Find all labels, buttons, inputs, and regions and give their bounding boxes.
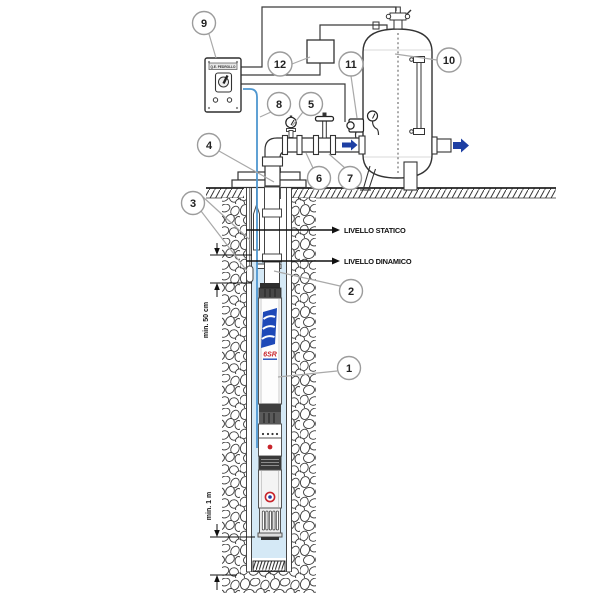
callout-2-level-sensor: 2 <box>340 280 363 303</box>
callout-10-pressure-tank: 10 <box>437 48 461 72</box>
static-level-label: LIVELLO STATICO <box>344 226 406 235</box>
callout-5-pressure-gauge: 5 <box>300 93 323 116</box>
dynamic-level-label: LIVELLO DINAMICO <box>344 257 412 266</box>
svg-text:10: 10 <box>443 55 455 67</box>
panel-indicator-light <box>227 98 231 102</box>
svg-text:6: 6 <box>316 173 322 185</box>
svg-text:8: 8 <box>276 99 282 111</box>
panel-switch <box>216 73 232 92</box>
callout-1-pump: 1 <box>338 357 361 380</box>
svg-text:12: 12 <box>274 59 286 71</box>
junction-box <box>307 40 334 63</box>
svg-text:4: 4 <box>206 140 213 152</box>
pump-brand-logo <box>261 308 277 348</box>
well-bottom-gravel <box>253 561 285 571</box>
suction-strainer <box>258 508 282 540</box>
pressure-switch <box>347 119 364 138</box>
valve-handwheel-icon <box>316 117 334 122</box>
arrow-right-icon <box>332 227 340 234</box>
outflow-arrow-icon <box>453 139 469 153</box>
callout-6-check-valve: 6 <box>308 167 331 190</box>
callout-4-well-cap: 4 <box>198 134 221 157</box>
pump-model-label: 6SR <box>263 352 277 359</box>
callout-7-gate-valve: 7 <box>339 167 362 190</box>
pump-installation-diagram: 6SR <box>0 0 600 600</box>
svg-text:2: 2 <box>348 286 354 298</box>
svg-text:7: 7 <box>347 173 353 185</box>
electrode-probe-lower <box>247 266 254 282</box>
min-submergence-label: min. 50 cm <box>203 302 210 338</box>
callout-9-control-panel: 9 <box>193 12 216 35</box>
panel-indicator-light <box>213 98 217 102</box>
svg-text:9: 9 <box>201 18 207 30</box>
svg-text:1: 1 <box>346 363 352 375</box>
panel-brand-label: Q.E. PEDROLLO <box>211 65 236 69</box>
callout-12-junction-box: 12 <box>268 52 292 76</box>
tank-outlet <box>432 137 469 154</box>
callout-8-power-cable: 8 <box>268 93 291 116</box>
min-clearance-label: min. 1 m <box>206 492 213 520</box>
control-panel: Q.E. PEDROLLO <box>205 58 241 112</box>
svg-text:3: 3 <box>190 198 196 210</box>
gate-valve <box>316 113 334 139</box>
motor-badge-icon <box>268 445 273 450</box>
riser-coupling <box>263 157 283 166</box>
check-valve-flange <box>314 136 319 155</box>
pressure-tank <box>359 7 469 190</box>
callout-3-electrodes: 3 <box>182 192 205 215</box>
arrow-right-icon <box>332 258 340 265</box>
svg-text:5: 5 <box>308 99 314 111</box>
tank-top-valve <box>386 7 411 29</box>
svg-text:11: 11 <box>345 59 357 71</box>
pressure-gauge <box>286 116 296 138</box>
submersible-pump: 6SR <box>258 283 282 540</box>
callout-11-pressure-switch: 11 <box>339 52 363 76</box>
